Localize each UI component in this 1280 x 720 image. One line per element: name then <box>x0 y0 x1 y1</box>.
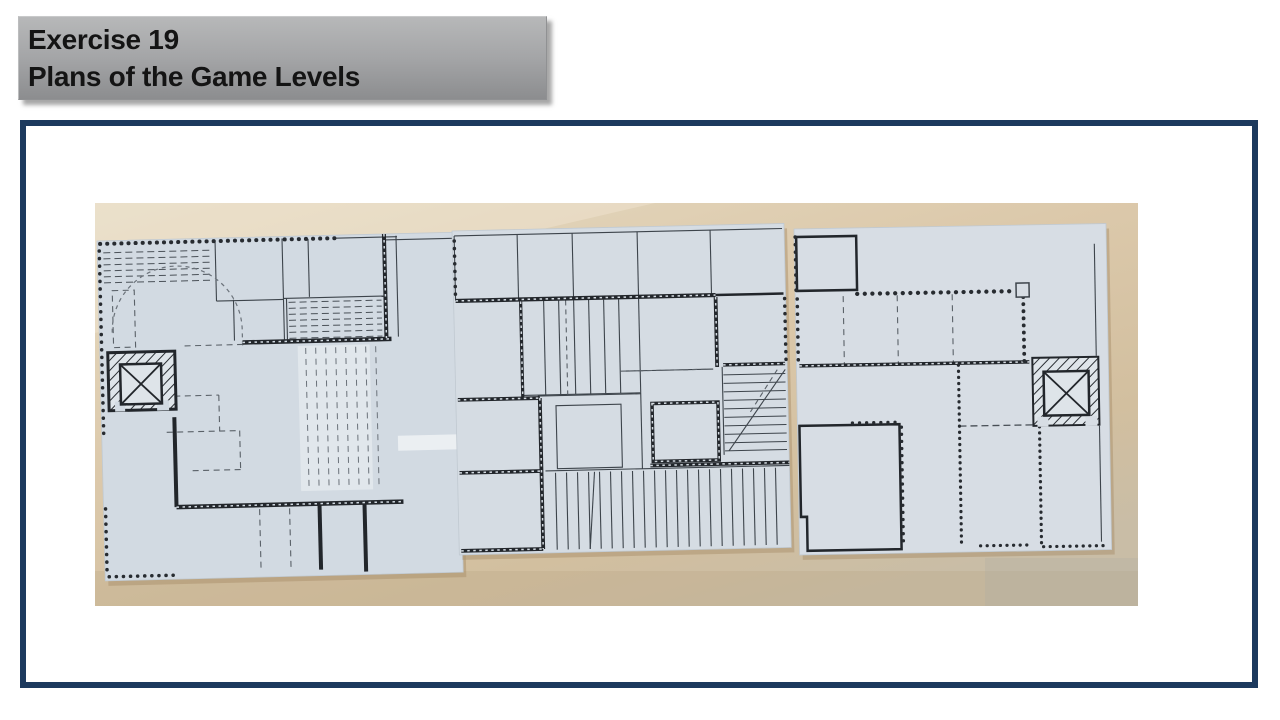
title-line-1: Exercise 19 <box>28 21 546 58</box>
title-line-2: Plans of the Game Levels <box>28 58 546 95</box>
plans-photo <box>95 203 1138 606</box>
elevator-shaft-left <box>108 351 176 412</box>
slide-title-banner: Exercise 19 Plans of the Game Levels <box>18 16 547 100</box>
wall-post <box>1016 283 1029 297</box>
level-plan-sheet-3 <box>794 224 1115 560</box>
elevator-shaft-right <box>1032 357 1099 427</box>
plans-photo-svg <box>95 203 1138 606</box>
level-plan-sheet-1 <box>97 232 466 586</box>
level-plan-sheet-2 <box>452 223 794 560</box>
